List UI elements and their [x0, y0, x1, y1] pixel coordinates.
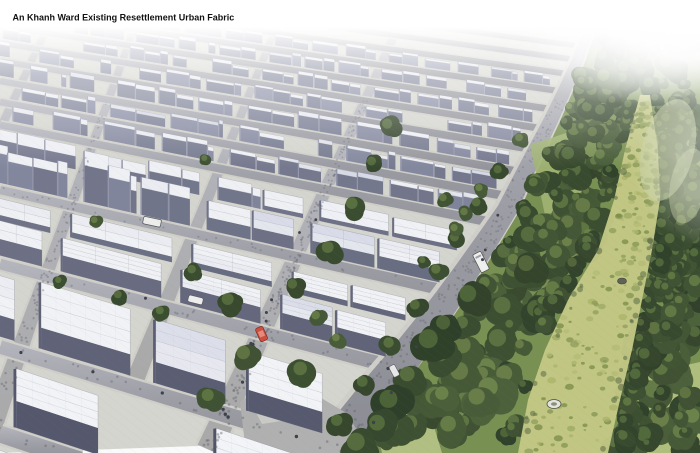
svg-text:An Khanh Ward Existing Resettl: An Khanh Ward Existing Resettlement Urba…	[13, 13, 235, 23]
